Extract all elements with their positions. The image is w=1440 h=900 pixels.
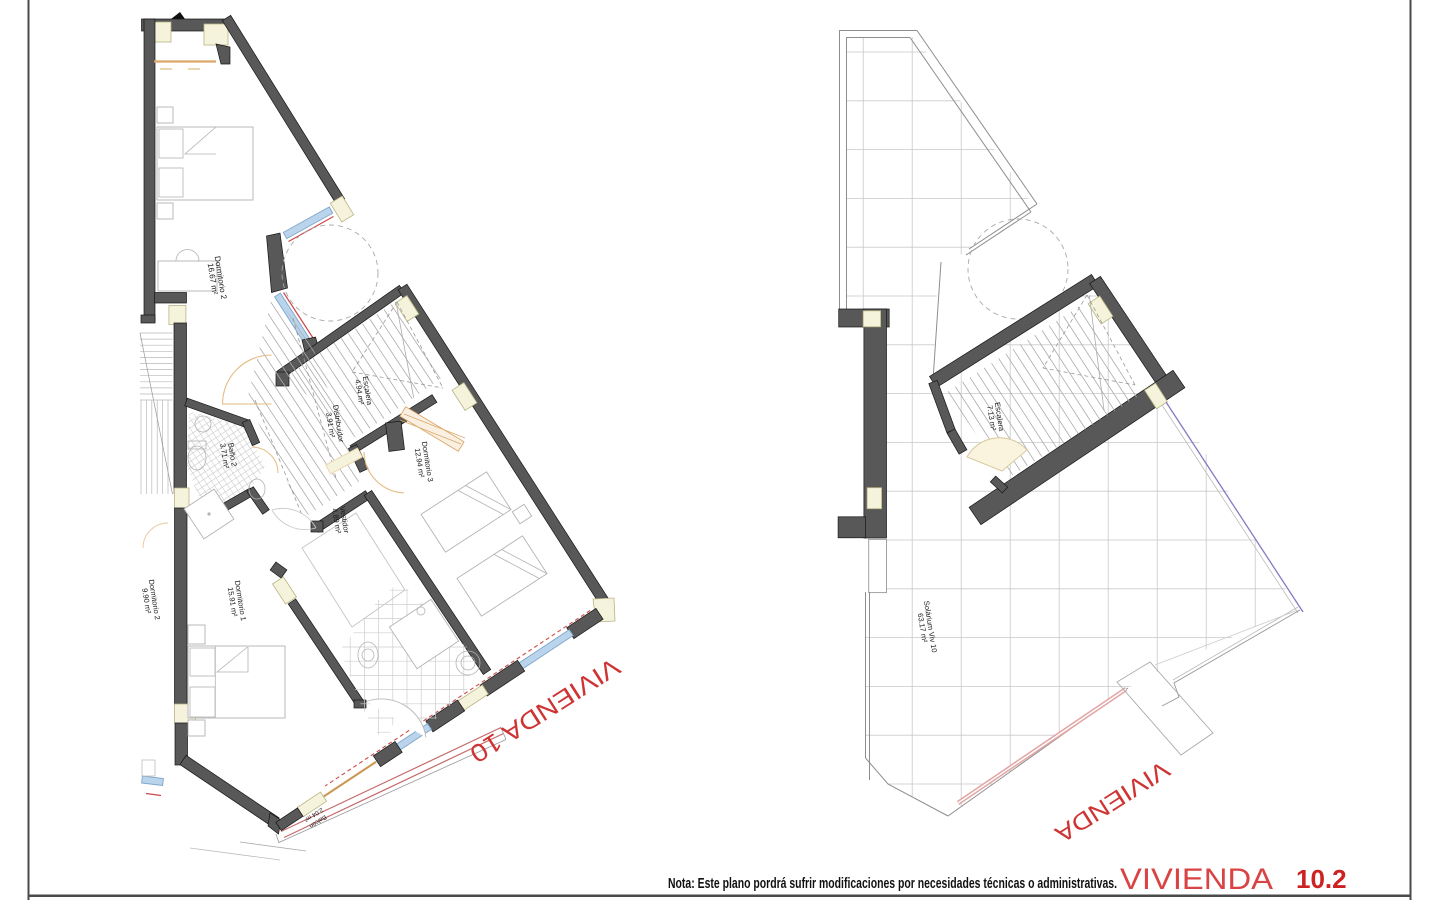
svg-text:VIVIENDA: VIVIENDA [1120, 863, 1273, 896]
svg-text:10.2: 10.2 [1296, 864, 1347, 894]
svg-text:Nota: Este plano pordrá sufrir: Nota: Este plano pordrá sufrir modificac… [668, 876, 1117, 892]
